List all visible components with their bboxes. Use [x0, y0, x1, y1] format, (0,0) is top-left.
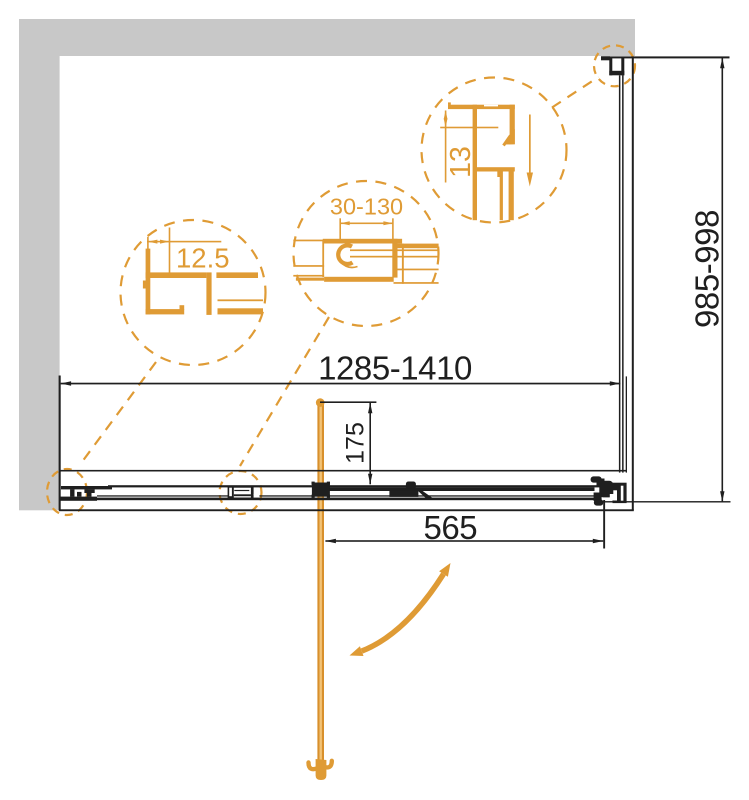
svg-text:13: 13: [445, 146, 477, 178]
svg-text:565: 565: [423, 509, 477, 546]
svg-text:1285-1410: 1285-1410: [318, 349, 472, 386]
svg-text:12.5: 12.5: [176, 243, 230, 274]
svg-text:175: 175: [342, 422, 370, 464]
svg-text:30-130: 30-130: [330, 194, 403, 220]
svg-text:985-998: 985-998: [689, 210, 726, 328]
